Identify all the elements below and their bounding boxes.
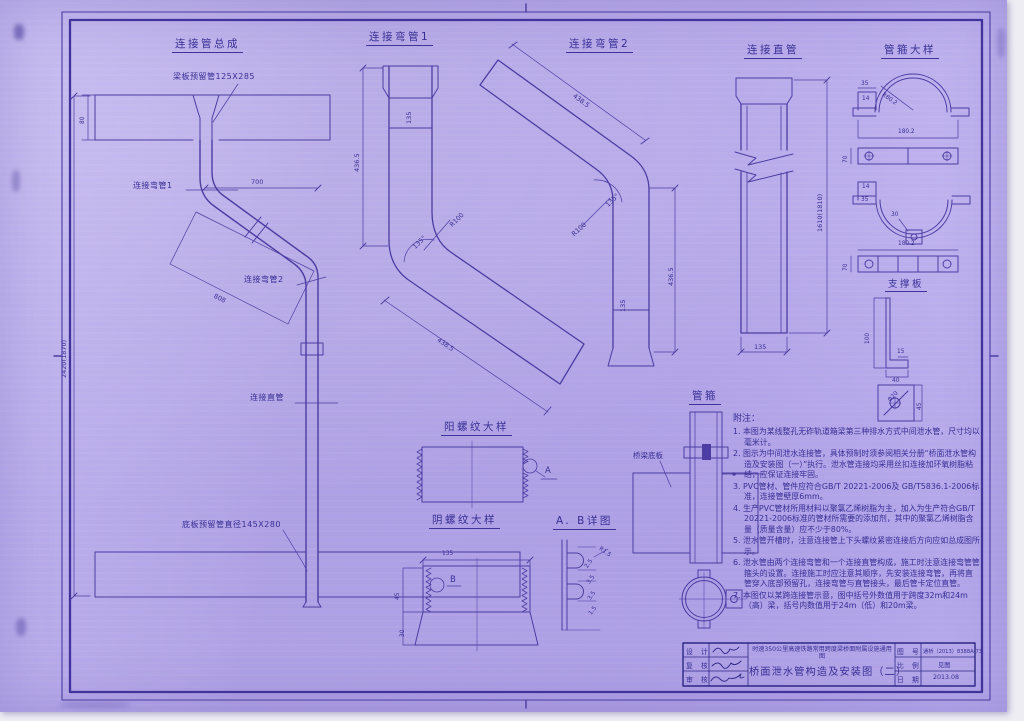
support-plate-title: 支撑板 (885, 276, 927, 292)
notes-title: 附注： (733, 411, 980, 424)
clamp-dim-70: 70 (843, 156, 849, 163)
bend1-dim-socket: 135 (405, 112, 413, 124)
plate-dim-45: 45 (917, 403, 923, 410)
drawing-canvas (0, 0, 1024, 721)
female-thread-drawing (403, 557, 538, 651)
bend2-dim-socket: 135 (619, 300, 627, 312)
blueprint-scan: 连接管总成 连接弯管1 连接弯管2 连接直管 管箍大样 支撑板 阳螺纹大样 阴螺… (0, 0, 1024, 721)
clamp-dim-35b: 35 (861, 197, 868, 203)
top-pipe-label: 梁板预留管125X285 (173, 71, 255, 82)
signature-scribbles (711, 647, 744, 681)
assembly-title: 连接管总成 (172, 36, 243, 53)
straight-dim-width: 135 (754, 343, 766, 351)
field-date-value: 2013.08 (933, 674, 959, 681)
titleblock-project: 时速350公里高速铁路常用跨度梁桥面附属设施通用图 (750, 646, 894, 660)
field-scale-value: 见图 (938, 660, 951, 669)
female-thread-title: 阴螺纹大样 (429, 512, 500, 529)
clamp-dim-35: 35 (861, 81, 868, 87)
dim-700: 700 (251, 178, 263, 186)
straight-dim-height: 1610(1810) (816, 194, 824, 232)
titleblock-row-check: 复 核 (686, 660, 711, 670)
straight-title: 连接直管 (744, 42, 802, 59)
note-item: 2. 图示为中间泄水连接管，具体预制时须参阅相关分册“桥面泄水管构造及安装图（一… (733, 449, 980, 481)
plate-dim-100: 100 (865, 333, 871, 344)
note-item: 3. PVC管材、管件应符合GB/T 20221-2006及 GB/T5836.… (733, 482, 980, 503)
scan-smudge (12, 170, 20, 192)
callout-a: A (545, 466, 551, 476)
clamp-dim-14b: 14 (862, 184, 869, 190)
ab-detail-title: A. B详图 (553, 513, 616, 530)
scan-smudge (16, 618, 26, 636)
female-dim-45: 45 (395, 593, 401, 600)
clamp-dim-30: 30 (891, 212, 898, 218)
titleblock-row-review: 审 核 (686, 674, 711, 684)
titleblock-row-design: 设 计 (686, 646, 711, 656)
slab-label: 桥梁底板 (633, 450, 663, 461)
field-drawing-no-label: 图 号 (897, 646, 922, 656)
scan-smudge (997, 28, 1005, 58)
bend1-dim-height: 436.5 (353, 153, 361, 172)
clamp-title: 管箍 (689, 388, 721, 405)
scan-smudge (60, 702, 130, 708)
plate-dim-15: 15 (897, 349, 904, 355)
clamp-dim-70b: 70 (843, 264, 849, 271)
note-item: 6. 泄水管由两个连接弯管和一个连接直管构成，施工时注意连接弯管管箍头的设置。连… (733, 558, 980, 590)
male-thread-drawing (417, 441, 557, 508)
clamp-detail-title: 管箍大样 (881, 42, 939, 59)
bend2-title: 连接弯管2 (566, 36, 633, 53)
note-item: 1. 本图为某线整孔无砟轨道箱梁第三种排水方式中间泄水管，尺寸均以毫米计。 (733, 427, 980, 448)
support-plate-drawing (874, 298, 922, 421)
titleblock-drawing-title: 桥面泄水管构造及安装图（二） (749, 663, 895, 678)
dim-2420: 2420(1870) (60, 340, 68, 378)
plate-dim-40: 40 (892, 378, 899, 384)
note-item: 4. 生产PVC管材所用材料以聚氯乙烯树脂为主，加入为生产符合GB/T 2022… (733, 504, 980, 536)
bottom-pipe-label: 底板预留管直径145X280 (182, 519, 281, 530)
bend1-drawing (360, 65, 584, 415)
field-scale-label: 比 例 (897, 660, 922, 670)
note-item: 7. 本图仅以某跨连接管示意，图中括号外数值用于跨度32m和24m（高）梁，括号… (733, 591, 980, 612)
scan-smudge (14, 24, 24, 40)
female-dim-135: 135 (442, 551, 453, 557)
male-thread-title: 阳螺纹大样 (441, 419, 512, 436)
dim-80: 80 (80, 117, 86, 124)
bend2-label: 连接弯管2 (244, 274, 284, 285)
clamp-dim-14: 14 (862, 96, 869, 102)
field-drawing-no-value: 通桥（2013）8388A-73 (923, 648, 982, 655)
clamp-dim-180b: 180.2 (898, 241, 915, 247)
bend2-drawing (480, 42, 678, 366)
bend1-label: 连接弯管1 (133, 180, 173, 191)
field-date-label: 日 期 (897, 674, 922, 684)
female-dim-30: 30 (400, 630, 406, 637)
clamp-dim-180: 180.2 (898, 129, 915, 135)
notes-block: 附注： 1. 本图为某线整孔无砟轨道箱梁第三种排水方式中间泄水管，尺寸均以毫米计… (733, 411, 980, 613)
bend1-title: 连接弯管1 (366, 29, 433, 46)
callout-b: B (450, 575, 456, 585)
note-item: 5. 泄水管开槽时，注意连接管上下头螺纹紧密连接后方向应如总成图所示。 (733, 536, 980, 557)
bend2-dim-height: 436.5 (667, 267, 675, 286)
straight-label: 连接直管 (250, 392, 284, 403)
